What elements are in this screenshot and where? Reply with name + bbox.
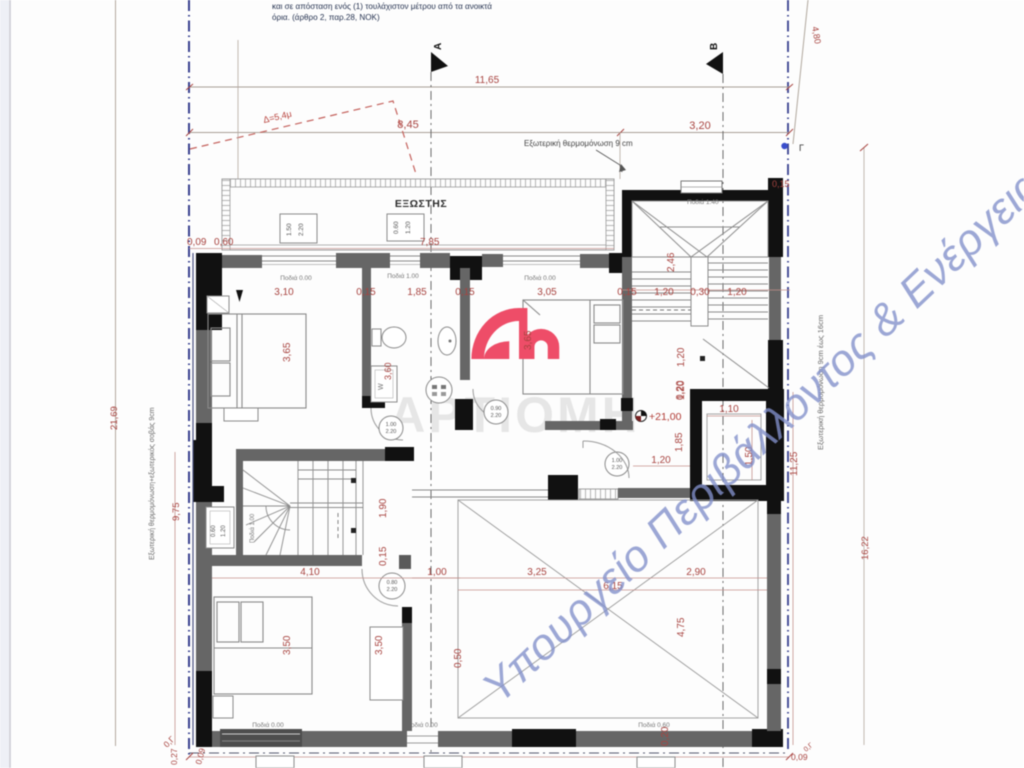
svg-text:3,25: 3,25: [527, 567, 547, 578]
svg-text:Ποδιά 0.00: Ποδιά 0.00: [280, 274, 312, 282]
svg-text:2.20: 2.20: [387, 587, 398, 593]
svg-text:1.00: 1.00: [612, 458, 623, 464]
svg-text:και σε απόσταση ενός (1) τουλά: και σε απόσταση ενός (1) τουλάχιστον μέτ…: [272, 2, 492, 11]
svg-text:Ποδιά 0.60: Ποδιά 0.60: [638, 721, 670, 729]
svg-text:W: W: [378, 383, 385, 390]
svg-text:2,46: 2,46: [666, 252, 677, 272]
svg-text:0,09: 0,09: [187, 237, 207, 248]
svg-text:0,60: 0,60: [214, 237, 234, 248]
svg-text:B: B: [709, 43, 720, 50]
svg-text:1,85: 1,85: [407, 287, 427, 298]
svg-text:Ποδιά 0.00: Ποδιά 0.00: [252, 721, 284, 729]
svg-text:11,65: 11,65: [475, 75, 500, 86]
svg-text:4,10: 4,10: [300, 567, 320, 578]
svg-text:Ποδιά 1.00: Ποδιά 1.00: [249, 513, 256, 543]
svg-text:3,05: 3,05: [537, 287, 557, 298]
svg-text:όρια. (άρθρο 2, παρ.28, ΝΟΚ): όρια. (άρθρο 2, παρ.28, ΝΟΚ): [272, 13, 380, 22]
svg-text:2.20: 2.20: [386, 429, 397, 435]
svg-text:4,75: 4,75: [676, 617, 687, 637]
svg-text:0,15: 0,15: [455, 287, 475, 298]
svg-text:3,65: 3,65: [523, 330, 534, 350]
svg-text:0,15: 0,15: [772, 179, 790, 189]
svg-text:0,15: 0,15: [356, 287, 376, 298]
svg-text:1.50: 1.50: [286, 223, 293, 236]
svg-text:0,15: 0,15: [378, 546, 389, 566]
svg-text:1,00: 1,00: [427, 567, 447, 578]
svg-text:2.20: 2.20: [612, 465, 623, 471]
svg-text:0,09: 0,09: [791, 752, 808, 762]
svg-text:Εξωτερική θερμομόνωση 9 cm: Εξωτερική θερμομόνωση 9 cm: [524, 139, 633, 148]
svg-text:3,10: 3,10: [274, 287, 294, 298]
svg-text:Εξωτερική θερμομόνωση+εξωτερικ: Εξωτερική θερμομόνωση+εξωτερικός σοβάς 9…: [148, 407, 156, 560]
svg-text:0.60: 0.60: [393, 221, 400, 234]
svg-text:0.60: 0.60: [211, 525, 217, 537]
svg-text:3,20: 3,20: [689, 120, 710, 132]
svg-text:21,69: 21,69: [109, 406, 120, 430]
svg-text:1,20: 1,20: [654, 287, 674, 298]
svg-text:1.20: 1.20: [221, 525, 227, 537]
svg-text:A: A: [433, 43, 444, 50]
svg-text:0,27: 0,27: [169, 748, 179, 765]
svg-text:Ποδιά 0.00: Ποδιά 0.00: [524, 274, 556, 282]
svg-text:3,50: 3,50: [374, 635, 385, 655]
svg-text:Γ: Γ: [799, 143, 804, 153]
svg-text:0,30: 0,30: [690, 287, 710, 298]
svg-text:0.90: 0.90: [491, 406, 502, 412]
svg-text:0,50: 0,50: [453, 648, 464, 668]
svg-text:9,75: 9,75: [171, 503, 182, 522]
svg-text:0,20: 0,20: [660, 726, 671, 746]
svg-text:1,10: 1,10: [719, 404, 739, 415]
svg-text:0,15: 0,15: [617, 287, 637, 298]
svg-text:3,50: 3,50: [282, 635, 293, 655]
svg-text:2.20: 2.20: [298, 223, 305, 236]
svg-text:11,25: 11,25: [789, 451, 800, 476]
svg-text:Ποδιά 1.40: Ποδιά 1.40: [687, 198, 719, 206]
svg-text:Ποδιά 1.00: Ποδιά 1.00: [387, 272, 419, 280]
svg-text:ΕΞΩΣΤΗΣ: ΕΞΩΣΤΗΣ: [395, 198, 447, 210]
svg-text:1.00: 1.00: [386, 422, 397, 428]
svg-text:2.20: 2.20: [491, 413, 502, 419]
svg-text:0,20: 0,20: [675, 380, 686, 400]
svg-text:7,85: 7,85: [420, 237, 440, 248]
svg-text:16,22: 16,22: [860, 536, 871, 560]
svg-text:1.20: 1.20: [405, 221, 412, 234]
svg-text:1,85: 1,85: [674, 432, 685, 452]
svg-text:3,65: 3,65: [282, 342, 293, 362]
svg-text:3,60: 3,60: [383, 362, 393, 380]
svg-text:1,20: 1,20: [676, 347, 687, 367]
svg-text:2,90: 2,90: [686, 567, 706, 578]
svg-text:1,20: 1,20: [727, 287, 747, 298]
svg-text:1,90: 1,90: [378, 498, 389, 518]
svg-text:1,20: 1,20: [651, 455, 671, 466]
svg-text:0.80: 0.80: [387, 580, 398, 586]
svg-text:+21,00: +21,00: [649, 411, 682, 423]
